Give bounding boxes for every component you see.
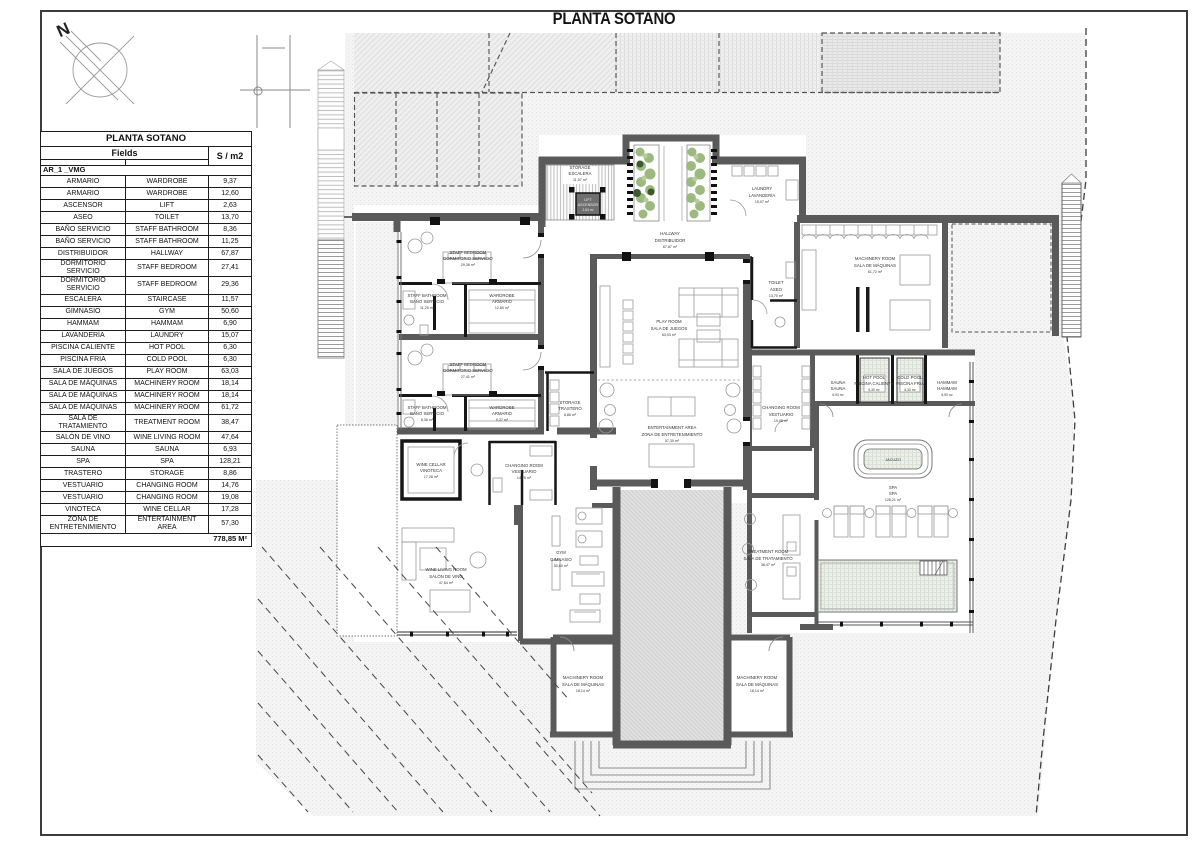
svg-text:HALLWAY: HALLWAY [660,231,680,236]
svg-text:TOILET: TOILET [769,280,784,285]
svg-text:13,70 m²: 13,70 m² [769,294,784,298]
svg-text:SALÓN DE VINO: SALÓN DE VINO [429,574,463,579]
svg-text:WINE LIVING ROOM: WINE LIVING ROOM [425,567,466,572]
svg-text:HAMMAM: HAMMAM [937,380,957,385]
svg-text:8,86 m²: 8,86 m² [564,413,577,417]
svg-text:6,30 m²: 6,30 m² [868,388,880,392]
svg-text:HOT POOL: HOT POOL [863,375,886,380]
svg-text:18,14 m²: 18,14 m² [576,689,591,693]
svg-text:ARMARIO: ARMARIO [492,411,513,416]
svg-text:LAUNDRY: LAUNDRY [752,186,773,191]
svg-text:29,36 m²: 29,36 m² [461,263,476,267]
svg-text:DISTRIBUIDOR: DISTRIBUIDOR [655,238,686,243]
svg-text:128,21 m²: 128,21 m² [885,498,902,502]
svg-text:ASCENSOR: ASCENSOR [578,203,599,207]
svg-text:6,30 m²: 6,30 m² [904,388,916,392]
svg-text:STORAGE: STORAGE [570,165,591,170]
svg-text:PISCINA CALIENTE: PISCINA CALIENTE [854,381,893,386]
svg-text:8,36 m²: 8,36 m² [421,418,434,422]
svg-text:STAFF BATHROOM: STAFF BATHROOM [408,405,447,410]
svg-text:12,60 m²: 12,60 m² [495,306,510,310]
svg-text:BAÑO SERVICIO: BAÑO SERVICIO [410,411,444,416]
svg-text:CHANGING ROOM: CHANGING ROOM [505,463,543,468]
svg-text:DORMITORIO SERVICIO: DORMITORIO SERVICIO [443,368,493,373]
svg-text:MACHINERY ROOM: MACHINERY ROOM [563,675,604,680]
svg-text:STAFF BEDROOM: STAFF BEDROOM [450,250,487,255]
svg-text:VESTUARIO: VESTUARIO [512,469,537,474]
svg-text:ASEO: ASEO [770,287,783,292]
svg-text:HAMMAM: HAMMAM [937,386,957,391]
svg-text:2,63 m²: 2,63 m² [582,208,594,212]
svg-text:57,30 m²: 57,30 m² [665,439,680,443]
svg-text:LIFT: LIFT [584,198,592,202]
svg-text:27,41 m²: 27,41 m² [461,375,476,379]
svg-text:61,72 m²: 61,72 m² [868,270,883,274]
svg-text:SAUNA: SAUNA [831,380,846,385]
svg-text:15,07 m²: 15,07 m² [755,200,770,204]
svg-text:63,03 m²: 63,03 m² [662,333,677,337]
svg-text:BAÑO SERVICIO: BAÑO SERVICIO [410,299,444,304]
svg-text:VESTUARIO: VESTUARIO [769,412,794,417]
svg-text:18,14 m²: 18,14 m² [750,689,765,693]
svg-text:CHANGING ROOM: CHANGING ROOM [762,405,800,410]
svg-text:ENTERTAINMENT AREA: ENTERTAINMENT AREA [648,425,697,430]
svg-text:6,93 m²: 6,93 m² [832,393,844,397]
svg-text:47,64 m²: 47,64 m² [439,581,454,585]
svg-text:6,90 m²: 6,90 m² [941,393,953,397]
svg-text:DORMITORIO SERVICIO: DORMITORIO SERVICIO [443,256,493,261]
svg-text:SALA DE MÁQUINAS: SALA DE MÁQUINAS [736,682,778,687]
svg-text:17,28 m²: 17,28 m² [424,475,439,479]
svg-text:19,08 m²: 19,08 m² [774,419,789,423]
svg-text:MACHINERY ROOM: MACHINERY ROOM [855,256,896,261]
svg-text:TREATMENT ROOM: TREATMENT ROOM [748,549,789,554]
svg-text:MACHINERY ROOM: MACHINERY ROOM [737,675,778,680]
svg-text:SALA DE JUEGOS: SALA DE JUEGOS [651,326,688,331]
svg-text:GYM: GYM [556,550,566,555]
svg-text:SALA DE MÁQUINAS: SALA DE MÁQUINAS [562,682,604,687]
svg-text:9,37 m²: 9,37 m² [496,418,509,422]
svg-text:GIMNASIO: GIMNASIO [550,557,572,562]
svg-text:STORAGE: STORAGE [560,400,581,405]
svg-text:SPA: SPA [889,491,897,496]
svg-text:ARMARIO: ARMARIO [492,299,513,304]
svg-text:TRASTERO: TRASTERO [558,406,582,411]
svg-text:11,25 m²: 11,25 m² [420,306,435,310]
svg-text:STAFF BATHROOM: STAFF BATHROOM [408,293,447,298]
svg-text:SALA DE TRATAMIENTO: SALA DE TRATAMIENTO [743,556,793,561]
svg-text:VINOTECA: VINOTECA [420,468,442,473]
svg-text:ZONA DE ENTRETENIMIENTO: ZONA DE ENTRETENIMIENTO [641,432,703,437]
svg-text:COLD POOL: COLD POOL [897,375,923,380]
svg-text:PISCINA FRIA: PISCINA FRIA [896,381,924,386]
svg-text:SAUNA: SAUNA [831,386,846,391]
svg-text:LAVANDERÍA: LAVANDERÍA [749,193,776,198]
svg-text:14,76 m²: 14,76 m² [517,476,532,480]
svg-text:SPA: SPA [889,485,897,490]
svg-text:WINE CELLAR: WINE CELLAR [416,462,445,467]
svg-text:ESCALERA: ESCALERA [569,171,592,176]
svg-text:38,47 m²: 38,47 m² [761,563,776,567]
svg-text:WARDROBE: WARDROBE [489,405,514,410]
svg-text:67,87 m²: 67,87 m² [663,245,678,249]
svg-text:STAFF BEDROOM: STAFF BEDROOM [450,362,487,367]
svg-text:WARDROBE: WARDROBE [489,293,514,298]
svg-text:PLAY ROOM: PLAY ROOM [656,319,682,324]
svg-text:11,57 m²: 11,57 m² [573,178,588,182]
svg-text:SALA DE MÁQUINAS: SALA DE MÁQUINAS [854,263,896,268]
svg-text:JACUZZI: JACUZZI [885,458,901,462]
svg-text:50,60 m²: 50,60 m² [554,564,569,568]
